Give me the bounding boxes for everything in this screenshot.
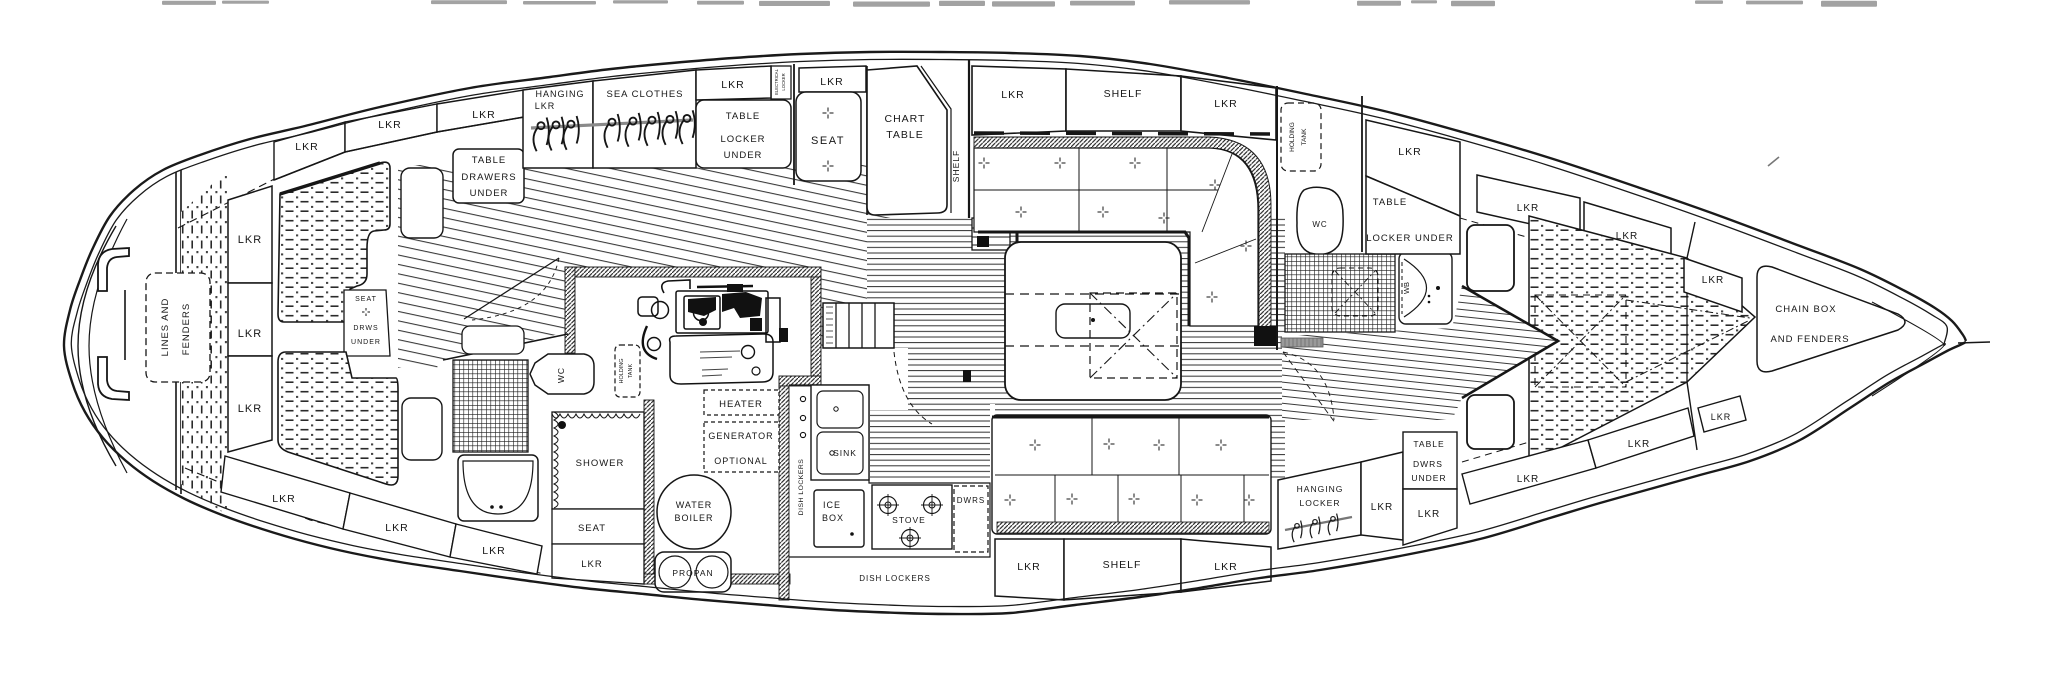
svg-text:SHELF: SHELF — [951, 150, 961, 182]
svg-text:LKR: LKR — [820, 76, 843, 88]
svg-text:LKR: LKR — [535, 101, 556, 111]
svg-text:LKR: LKR — [1001, 89, 1024, 101]
svg-text:SHOWER: SHOWER — [576, 458, 625, 469]
svg-text:LKR: LKR — [1017, 561, 1040, 573]
svg-text:HANGING: HANGING — [1297, 484, 1344, 494]
svg-text:LKR: LKR — [238, 328, 262, 340]
svg-text:LKR: LKR — [721, 79, 744, 91]
svg-text:CHART: CHART — [885, 113, 926, 125]
svg-text:LKR: LKR — [1628, 439, 1650, 450]
svg-text:WC: WC — [1312, 220, 1327, 229]
svg-text:TABLE: TABLE — [1373, 197, 1407, 208]
svg-text:DWRS: DWRS — [957, 496, 985, 505]
svg-text:TANK: TANK — [628, 364, 634, 379]
svg-text:LINES AND: LINES AND — [160, 298, 171, 357]
svg-text:SEA CLOTHES: SEA CLOTHES — [607, 89, 684, 100]
svg-text:LKR: LKR — [238, 403, 262, 415]
svg-text:LKR: LKR — [581, 559, 602, 570]
svg-text:LKR: LKR — [385, 522, 408, 534]
svg-text:DWRS: DWRS — [1413, 459, 1443, 469]
svg-text:HOLDING: HOLDING — [1289, 122, 1296, 152]
svg-text:TABLE: TABLE — [726, 111, 760, 122]
svg-text:LKR: LKR — [1371, 502, 1393, 513]
svg-text:WB: WB — [1402, 282, 1411, 294]
svg-text:LOCKER UNDER: LOCKER UNDER — [1366, 233, 1454, 244]
svg-text:LKR: LKR — [1711, 412, 1732, 422]
svg-text:SEAT: SEAT — [355, 296, 377, 303]
svg-text:WATER: WATER — [676, 500, 713, 510]
svg-text:LKR: LKR — [482, 545, 505, 557]
svg-text:LKR: LKR — [1517, 203, 1539, 214]
svg-text:LKR: LKR — [272, 493, 295, 505]
svg-text:ICE: ICE — [823, 500, 841, 510]
svg-text:STOVE: STOVE — [892, 515, 926, 525]
svg-text:LKR: LKR — [1702, 275, 1724, 286]
svg-text:SINK: SINK — [833, 448, 857, 458]
svg-text:LOCKER: LOCKER — [781, 73, 786, 90]
svg-text:BOILER: BOILER — [674, 513, 713, 523]
svg-text:DISH LOCKERS: DISH LOCKERS — [859, 574, 931, 583]
svg-text:TABLE: TABLE — [472, 155, 506, 166]
svg-text:DRWS: DRWS — [353, 325, 378, 332]
svg-text:TANK: TANK — [1301, 128, 1308, 146]
svg-text:LKR: LKR — [1517, 474, 1539, 485]
svg-text:LKR: LKR — [1214, 98, 1237, 110]
svg-text:PROPAN: PROPAN — [672, 568, 713, 578]
svg-text:HANGING: HANGING — [535, 89, 584, 99]
svg-text:OPTIONAL: OPTIONAL — [714, 456, 768, 466]
svg-text:GENERATOR: GENERATOR — [708, 431, 773, 441]
svg-text:SHELF: SHELF — [1103, 559, 1142, 571]
svg-text:UNDER: UNDER — [351, 339, 381, 346]
svg-text:SEAT: SEAT — [811, 135, 845, 147]
svg-text:UNDER: UNDER — [470, 188, 509, 199]
svg-text:UNDER: UNDER — [1411, 473, 1446, 483]
svg-text:DRAWERS: DRAWERS — [461, 172, 516, 183]
svg-text:WC: WC — [556, 367, 566, 383]
svg-text:LKR: LKR — [238, 234, 262, 246]
svg-text:HOLDING: HOLDING — [619, 358, 625, 383]
svg-text:LKR: LKR — [378, 119, 401, 131]
svg-text:HEATER: HEATER — [719, 399, 763, 410]
svg-text:SEAT: SEAT — [578, 523, 606, 534]
svg-text:LKR: LKR — [1418, 509, 1440, 520]
svg-text:SHELF: SHELF — [1104, 88, 1143, 100]
svg-text:CHAIN BOX: CHAIN BOX — [1775, 304, 1836, 315]
svg-text:LKR: LKR — [472, 109, 495, 121]
svg-text:DISH LOCKERS: DISH LOCKERS — [798, 459, 805, 516]
svg-text:ELECTRICAL: ELECTRICAL — [774, 68, 779, 95]
svg-text:FENDERS: FENDERS — [181, 303, 192, 355]
svg-text:LKR: LKR — [1214, 561, 1237, 573]
svg-text:BOX: BOX — [822, 513, 844, 523]
svg-text:LOCKER: LOCKER — [1300, 498, 1341, 508]
svg-text:UNDER: UNDER — [724, 150, 763, 161]
svg-text:LKR: LKR — [1398, 146, 1421, 158]
svg-text:AND FENDERS: AND FENDERS — [1770, 334, 1849, 345]
svg-text:TABLE: TABLE — [886, 129, 923, 141]
svg-text:TABLE: TABLE — [1413, 439, 1444, 449]
svg-text:LKR: LKR — [295, 141, 318, 153]
svg-text:LOCKER: LOCKER — [720, 134, 765, 145]
